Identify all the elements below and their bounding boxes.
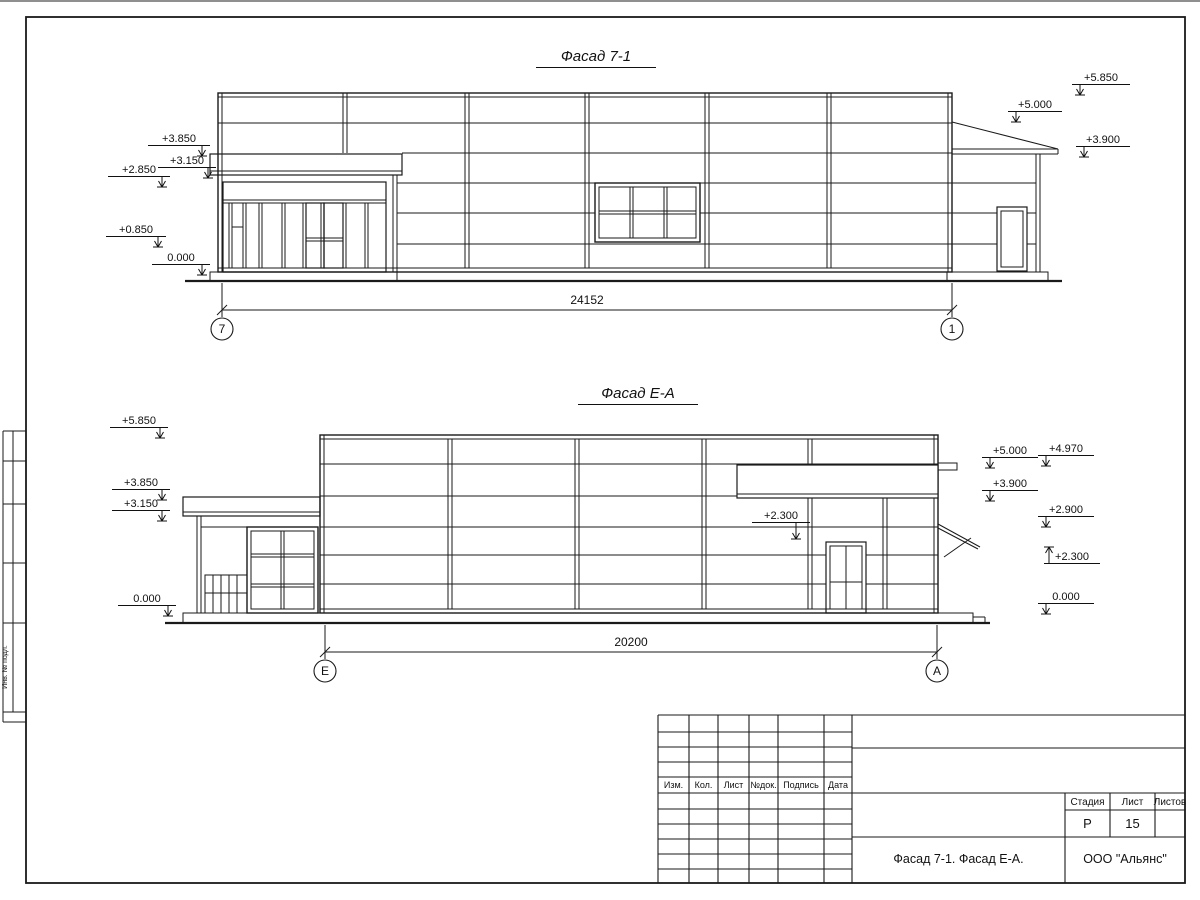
elevation-arrow-icon (1010, 111, 1022, 133)
side-stamp-label: Инв. № подл. (2, 624, 14, 710)
axis-bubble-1: 1 (940, 322, 964, 336)
elevation-arrow-icon (156, 176, 168, 198)
elevation-arrow-icon (1043, 545, 1055, 567)
axis-bubble-a: А (925, 664, 949, 678)
revision-header-podpis: Подпись (778, 780, 824, 790)
elevation-mark: +2.300 (752, 522, 810, 523)
company-name: ООО "Альянс" (1065, 852, 1185, 866)
dimension-24152: 24152 (547, 293, 627, 307)
elevation-arrow-icon (984, 490, 996, 512)
elevation-value: +5.850 (110, 415, 168, 427)
elevation-value: +2.300 (752, 510, 810, 522)
elevation-value: +3.850 (112, 477, 170, 489)
elevation-arrow-icon (156, 510, 168, 532)
elevation-mark: 0.000 (1038, 603, 1094, 604)
elevation-arrow-icon (1040, 603, 1052, 625)
elevation-mark: +3.900 (1076, 146, 1130, 147)
elevation-mark: +0.850 (106, 236, 166, 237)
elevation-value: +3.150 (112, 498, 170, 510)
elevation-arrow-icon (154, 427, 166, 449)
elevation-value: +0.850 (106, 224, 166, 236)
axis-bubble-7: 7 (210, 322, 234, 336)
elevation-mark: +4.970 (1038, 455, 1094, 456)
elevation-mark: +5.000 (1008, 111, 1062, 112)
elevation-arrow-icon (1078, 146, 1090, 168)
elevation-mark: +5.850 (110, 427, 168, 428)
elevation-mark: +3.150 (112, 510, 170, 511)
facade-ea-drawing (165, 435, 990, 682)
revision-header-data: Дата (824, 780, 852, 790)
elevation-value: 0.000 (1038, 591, 1094, 603)
elevation-value: 0.000 (118, 593, 176, 605)
elevation-value: +2.850 (108, 164, 170, 176)
revision-header-izm: Изм. (658, 780, 689, 790)
elevation-arrow-icon (1074, 84, 1086, 106)
elevation-mark: 0.000 (118, 605, 176, 606)
elevation-mark: +2.900 (1038, 516, 1094, 517)
elevation-value: +2.900 (1038, 504, 1094, 516)
elevation-arrow-icon (984, 457, 996, 479)
elevation-value: +5.000 (982, 445, 1038, 457)
revision-header-list: Лист (718, 780, 749, 790)
elevation-mark: +3.900 (982, 490, 1038, 491)
elevation-mark: +3.850 (112, 489, 170, 490)
elevation-value: 0.000 (152, 252, 210, 264)
elevation-arrow-icon (202, 167, 214, 189)
axis-bubble-e: Е (313, 664, 337, 678)
elevation-arrow-icon (162, 605, 174, 627)
sheet-value: 15 (1110, 816, 1155, 831)
elevation-value: +4.970 (1038, 443, 1094, 455)
elevation-arrow-icon (1040, 516, 1052, 538)
document-title: Фасад 7-1. Фасад Е-А. (856, 852, 1061, 866)
sheets-label: Листов (1152, 797, 1188, 808)
elevation-arrow-icon (790, 522, 802, 544)
elevation-mark: +2.850 (108, 176, 170, 177)
dimension-20200: 20200 (591, 635, 671, 649)
elevation-value: +5.850 (1072, 72, 1130, 84)
drawing-sheet: Фасад 7-1 Фасад Е-А 24152 20200 7 1 Е А … (0, 0, 1200, 900)
elevation-value: +5.000 (1008, 99, 1062, 111)
elevation-value: +3.900 (1076, 134, 1130, 146)
revision-header-kol: Кол. (689, 780, 718, 790)
elevation-mark: +5.850 (1072, 84, 1130, 85)
elevation-value: +3.850 (148, 133, 210, 145)
stage-value: Р (1065, 816, 1110, 831)
revision-header-ndok: №док. (749, 780, 778, 790)
elevation-mark: +3.850 (148, 145, 210, 146)
elevation-arrow-icon (196, 264, 208, 286)
sheet-label: Лист (1110, 797, 1155, 808)
elevation-mark: 0.000 (152, 264, 210, 265)
facade-7-1-title: Фасад 7-1 (536, 48, 656, 68)
stage-label: Стадия (1065, 797, 1110, 808)
elevation-value: +3.900 (982, 478, 1038, 490)
elevation-mark: +2.300 (1044, 563, 1100, 564)
elevation-mark: +5.000 (982, 457, 1038, 458)
facade-ea-title: Фасад Е-А (578, 385, 698, 405)
elevation-arrow-icon (1040, 455, 1052, 477)
